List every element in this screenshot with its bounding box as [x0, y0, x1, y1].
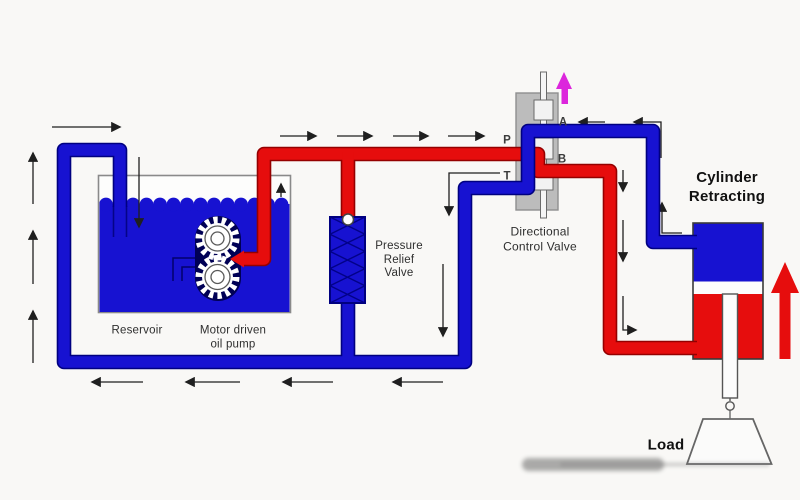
piston-motion-arrow	[771, 262, 799, 359]
cylinder-state-label: Cylinder Retracting	[689, 168, 765, 206]
relief-label-line3: Valve	[375, 267, 423, 281]
cylinder-cap-side-fluid	[693, 223, 763, 282]
relief-label-line2: Relief	[375, 253, 423, 267]
cylinder-piston	[693, 282, 763, 295]
cylinder-label-line2: Retracting	[689, 187, 765, 206]
watermark-smudge-faint	[560, 462, 770, 467]
cylinder-label-line1: Cylinder	[689, 168, 765, 187]
relief-label-line1: Pressure	[375, 240, 423, 254]
port-t-label: T	[503, 170, 510, 184]
hydraulic-system-diagram: Reservoir Motor driven oil pump Pressure…	[0, 0, 800, 500]
pump-label-line1: Motor driven	[200, 325, 266, 339]
port-b-label: B	[558, 153, 566, 167]
rod-hook	[726, 402, 734, 410]
pump-label-line2: oil pump	[200, 338, 266, 352]
reservoir-label: Reservoir	[111, 324, 162, 338]
port-p-label: P	[503, 134, 511, 148]
relief-valve-ball	[343, 214, 354, 225]
dcv-label: Directional Control Valve	[503, 225, 577, 254]
port-a-label: A	[559, 116, 567, 130]
relief-valve-label: Pressure Relief Valve	[375, 240, 423, 281]
load-weight	[687, 419, 772, 464]
piston-rod	[723, 294, 738, 398]
dcv-label-line2: Control Valve	[503, 239, 577, 254]
load-label: Load	[648, 436, 685, 455]
dcv-label-line1: Directional	[503, 225, 577, 240]
pump-label: Motor driven oil pump	[200, 325, 266, 352]
pressure-relief-valve	[330, 214, 365, 303]
